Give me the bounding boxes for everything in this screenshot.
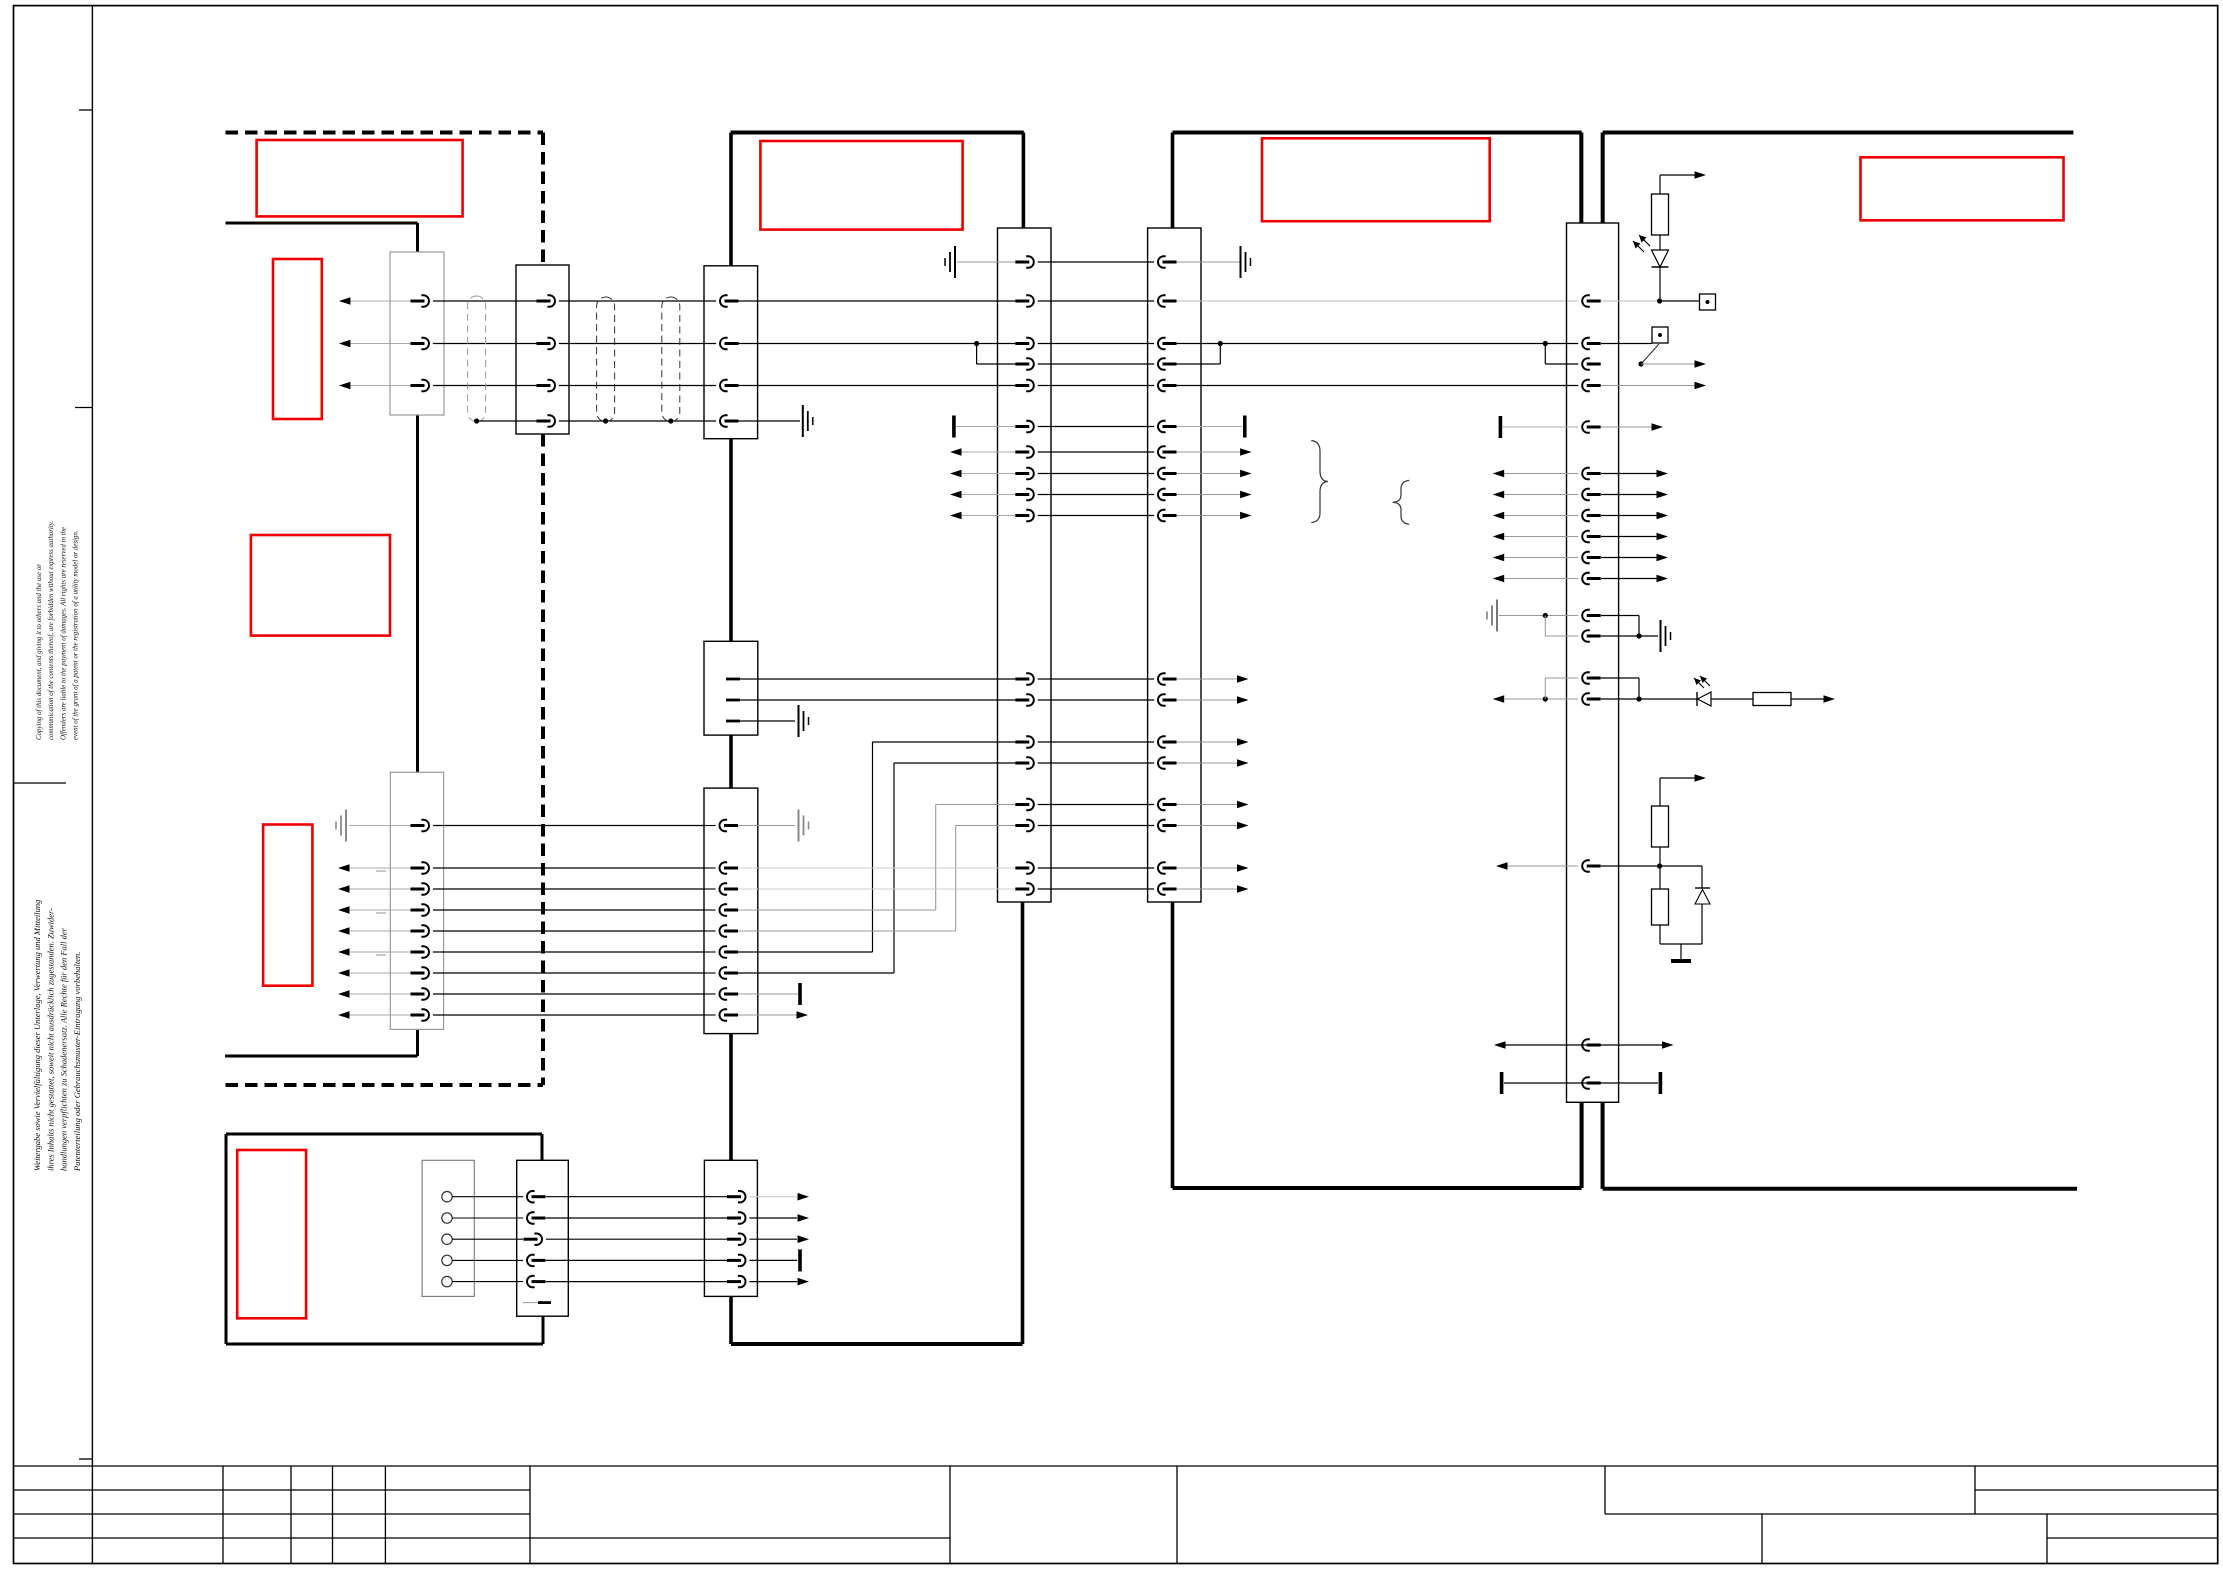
- svg-text:Copying of this document, and: Copying of this document, and giving it …: [36, 564, 43, 740]
- svg-text:Weitergabe sowie Vervielfältig: Weitergabe sowie Vervielfältigung dieser…: [32, 900, 42, 1171]
- svg-text:event of the grant of a patent: event of the grant of a patent or the re…: [73, 530, 80, 740]
- svg-text:Offenders are liable to the pa: Offenders are liable to the payment of d…: [60, 527, 67, 740]
- svg-text:communication of the contents: communication of the contents thereof, a…: [48, 521, 55, 740]
- svg-text:ihres Inhalts nicht gestattet,: ihres Inhalts nicht gestattet, soweit ni…: [45, 908, 55, 1171]
- svg-text:handlungen verpflichten zu Sch: handlungen verpflichten zu Schadenersatz…: [59, 927, 69, 1171]
- svg-text:Patenterteilung oder Gebrauchs: Patenterteilung oder Gebrauchsmuster-Ein…: [72, 952, 82, 1172]
